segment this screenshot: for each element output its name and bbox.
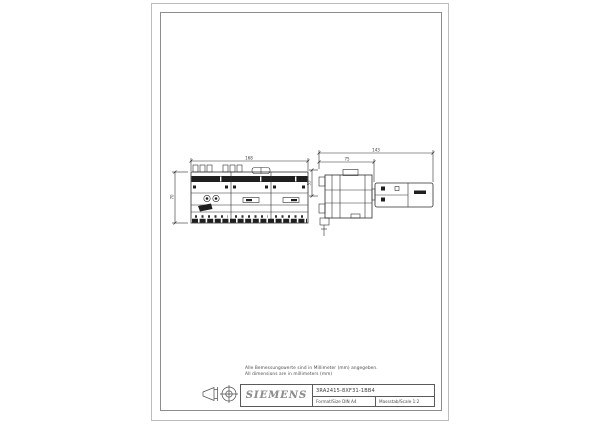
dimension-label: 70 (170, 194, 175, 200)
indicator-circles (204, 195, 219, 201)
title-block: SIEMENS 3RA2415-8XF31-1BB4 Format/Size D… (240, 384, 435, 407)
dimension-label: 75 (344, 157, 350, 162)
dimensional-drawing: 168 70 (0, 0, 600, 425)
lever-detail (198, 204, 213, 212)
side-module (372, 183, 433, 207)
siemens-logo: SIEMENS (246, 390, 308, 401)
din-clip (320, 218, 329, 236)
title-block-right: 3RA2415-8XF31-1BB4 Format/Size DIN A4 Ma… (313, 385, 434, 406)
dimension-label: 35 (307, 180, 312, 186)
dim-front-height: 70 (170, 171, 189, 225)
part-number: 3RA2415-8XF31-1BB4 (313, 385, 434, 396)
dimension-label: 143 (372, 148, 380, 153)
side-view: 143 75 35 (307, 148, 435, 237)
brand-cell: SIEMENS (241, 385, 313, 406)
format-cell: Format/Size DIN A4 (313, 397, 375, 406)
note-line-de: Alle Bemessungswerte sind in Millimeter … (245, 366, 378, 371)
note-line-en: All dimensions are in millimeters (mm) (245, 372, 332, 377)
scale-cell: Massstab/Scale 1:2 (375, 397, 434, 406)
dim-side-overall: 143 (318, 148, 435, 183)
front-view: 168 70 (170, 156, 310, 225)
dimension-label: 168 (245, 156, 253, 161)
title-block-bottom-row: Format/Size DIN A4 Massstab/Scale 1:2 (313, 396, 434, 406)
strip-marks (193, 186, 305, 189)
dim-front-width: 168 (190, 156, 310, 172)
first-angle-projection-icon (203, 385, 238, 403)
